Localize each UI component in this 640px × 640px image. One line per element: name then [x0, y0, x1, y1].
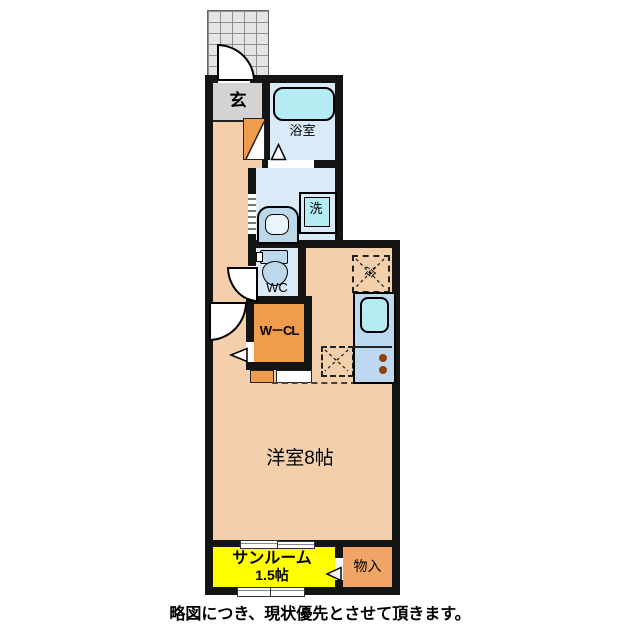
sunroom-sliding-door-panel-1: [240, 540, 279, 549]
wall-wcl-bottom: [246, 362, 312, 370]
bathroom-label: 浴室: [270, 124, 335, 139]
stove-burner-2: [379, 366, 387, 374]
entrance-step-box: [243, 118, 265, 160]
wc-label: WC: [256, 281, 298, 296]
equipment-x-icon: [323, 348, 352, 375]
dashed-equipment-space: [321, 346, 354, 377]
vanity-sink-bowl: [265, 214, 289, 235]
sunroom-window-panel-1: [237, 587, 271, 597]
sunroom-size-label: 1.5帖: [216, 567, 328, 583]
washer-label: 洗: [300, 202, 332, 217]
main-room-label: 洋室8帖: [240, 448, 360, 470]
fridge-label: 冷: [362, 255, 376, 289]
closet-label: W－CL: [250, 324, 308, 339]
entrance-label: 玄: [213, 91, 263, 111]
storage-label: 物入: [343, 558, 392, 574]
toilet-button: [256, 252, 263, 262]
sunroom-name-label: サンルーム: [216, 550, 328, 568]
sunroom-window-panel-2: [270, 587, 305, 597]
wall-kitchen-top: [335, 240, 400, 248]
kitchen-sink: [360, 297, 389, 333]
floor-plan: 洗 WC 冷 玄 浴室 W－CL 洋室8帖 サンルーム 1.5帖 物入 略図につ…: [0, 0, 640, 640]
caption-text: 略図につき、現状優先とさせて頂きます。: [120, 606, 520, 624]
bathtub: [273, 87, 335, 121]
stove-burner-1: [379, 354, 387, 362]
wall-wc-left: [248, 248, 256, 268]
closet-pocket-box: [250, 370, 274, 383]
washroom-accordion-door: [248, 194, 256, 234]
kitchen-counter-divider: [353, 346, 392, 348]
closet-door-arrow-icon: [229, 347, 249, 363]
bathroom-door-opening: [268, 160, 314, 168]
sunroom-sliding-door-panel-2: [277, 541, 315, 549]
kitchen-open-boundary-dashed: [272, 382, 357, 384]
bathroom-folding-door-icon: [270, 143, 287, 161]
